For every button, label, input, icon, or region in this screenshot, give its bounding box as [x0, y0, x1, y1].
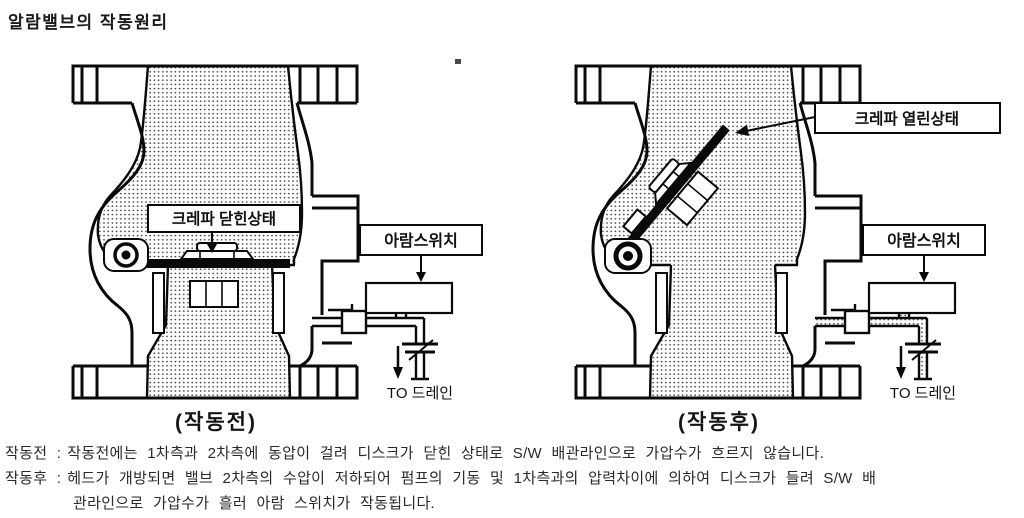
switch-label: 아람스위치 — [384, 231, 458, 250]
clapper-hinge — [605, 239, 651, 273]
description-after-text: 헤드가 개방되면 밸브 2차측의 수압이 저하되어 펌프의 기동 및 1차측과의… — [67, 470, 876, 487]
disc-bolt-block — [190, 281, 238, 307]
alarm-switch-box — [366, 283, 452, 313]
switch-label-callout: 아람스위치 — [863, 225, 985, 282]
clapper-cap — [197, 243, 237, 251]
clapper-label: 크레파 닫힌상태 — [172, 209, 276, 228]
drain-valve-symbol — [402, 340, 438, 379]
clapper-nut — [181, 251, 253, 259]
description-after-line: 작동후 :헤드가 개방되면 밸브 2차측의 수압이 저하되어 펌프의 기동 및 … — [5, 466, 1020, 516]
test-valve — [845, 311, 869, 333]
drain-label: TO 드레인 — [890, 385, 956, 402]
test-valve — [342, 311, 366, 333]
description-block: 작동전 :작동전에는 1차측과 2차측에 동압이 걸려 디스크가 닫힌 상태로 … — [5, 441, 1020, 516]
drain-flow-arrow — [393, 346, 403, 379]
description-after-term: 작동후 : — [5, 470, 61, 487]
clapper-label: 크레파 열린상태 — [855, 110, 959, 128]
description-after-text-continued: 관라인으로 가압수가 흘러 아람 스위치가 작동됩니다. — [5, 491, 1020, 516]
clapper-hinge — [104, 239, 148, 271]
caption-before: (작동전) — [60, 406, 372, 436]
switch-label-callout: 아람스위치 — [360, 225, 482, 282]
caption-after: (작동후) — [563, 406, 875, 436]
description-before-term: 작동전 : — [5, 445, 61, 462]
valve-diagram-after: TO 드레인 아람스위치 크레파 열린상태 — [563, 53, 1023, 405]
alarm-switch-box — [869, 283, 955, 313]
description-before-text: 작동전에는 1차측과 2차측에 동압이 걸려 디스크가 닫힌 상태로 S/W 배… — [67, 445, 824, 462]
switch-label: 아람스위치 — [887, 231, 961, 250]
drain-flow-arrow — [896, 346, 906, 379]
page-title: 알람밸브의 작동원리 — [8, 8, 168, 33]
description-before-line: 작동전 :작동전에는 1차측과 2차측에 동압이 걸려 디스크가 닫힌 상태로 … — [5, 441, 1020, 466]
drain-label: TO 드레인 — [387, 385, 453, 402]
valve-diagram-before: TO 드레인 아람스위치 크레파 닫힌상태 — [60, 53, 520, 405]
